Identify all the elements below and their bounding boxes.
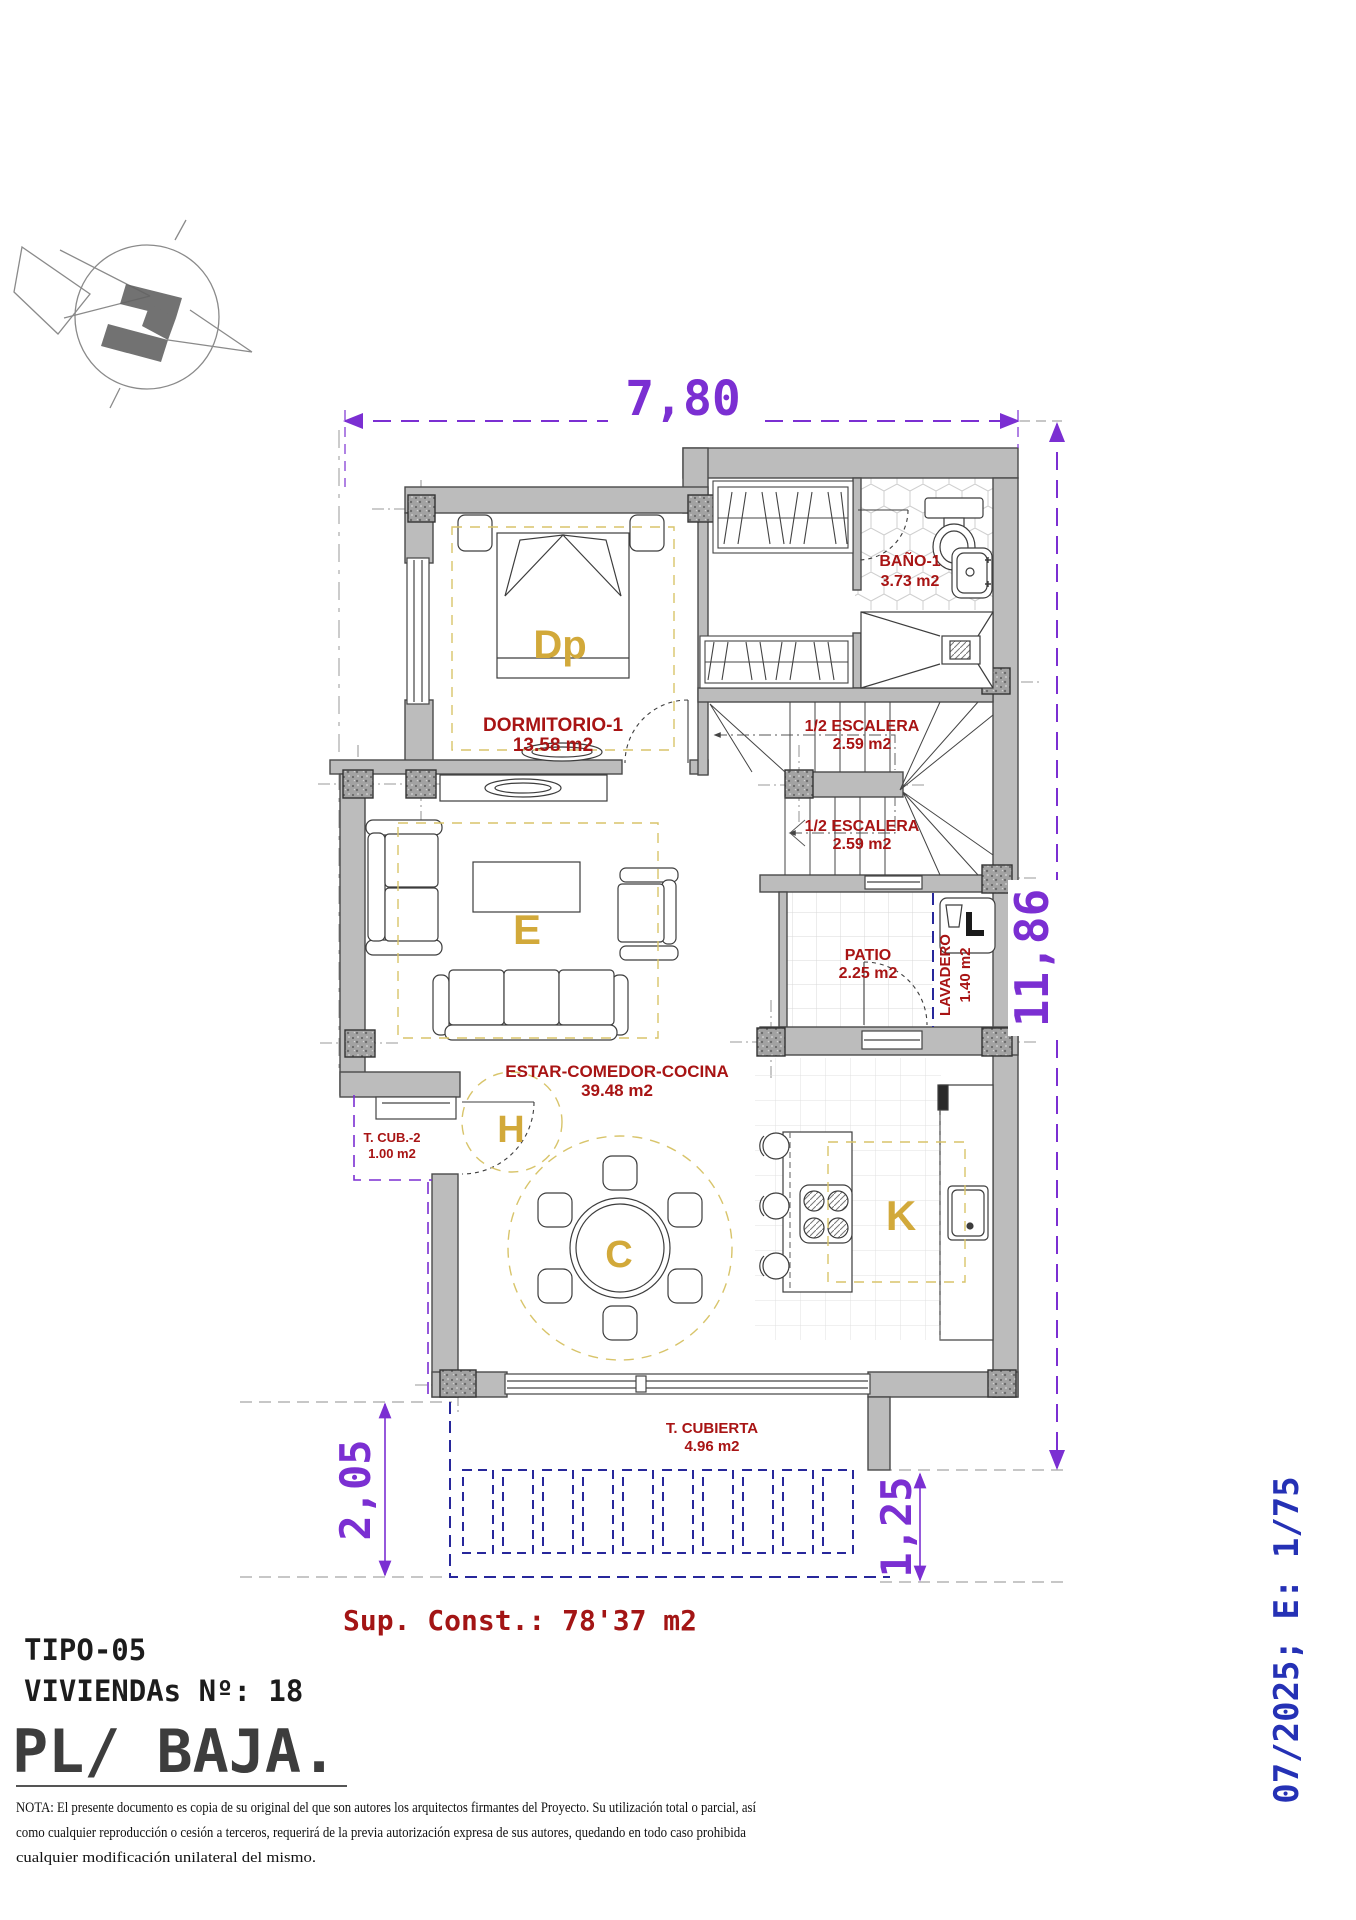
living-sliding-door bbox=[505, 1374, 870, 1394]
floor-plan-drawing: 7,80 11,86 2,05 1,25 DORMITORIO-1 13.58 … bbox=[0, 0, 1356, 1920]
terrace-side-wall bbox=[868, 1397, 890, 1470]
stair-center-wall bbox=[812, 772, 903, 797]
letter-hall: H bbox=[497, 1109, 524, 1151]
label-tcubierta-name: T. CUBIERTA bbox=[666, 1420, 758, 1437]
floor-plan-sheet: 7,80 11,86 2,05 1,25 DORMITORIO-1 13.58 … bbox=[0, 0, 1356, 1920]
shower-icon bbox=[861, 612, 993, 688]
washer-detergent-tray bbox=[946, 905, 962, 927]
closet-bath-partition-lower bbox=[853, 633, 861, 688]
letter-cocina: K bbox=[886, 1192, 916, 1239]
label-patio-name: PATIO bbox=[845, 947, 892, 964]
dining-chair bbox=[668, 1193, 702, 1227]
label-tcub2-name: T. CUB.-2 bbox=[363, 1130, 420, 1145]
label-lavadero-name: LAVADERO bbox=[937, 934, 954, 1016]
bedroom-door bbox=[625, 700, 688, 763]
west-wall-lower bbox=[432, 1174, 458, 1397]
bedroom-south-partition bbox=[330, 760, 622, 774]
nightstand-left bbox=[458, 515, 492, 551]
label-dormitorio-area: 13.58 m2 bbox=[513, 735, 593, 756]
label-escalera-sup-area: 2.59 m2 bbox=[833, 736, 892, 753]
sup-const-label: Sup. Const.: 78'37 m2 bbox=[343, 1604, 697, 1637]
washbasin-icon bbox=[952, 548, 992, 598]
label-bano-area: 3.73 m2 bbox=[881, 573, 940, 590]
nightstand-right bbox=[630, 515, 664, 551]
sofa-three-seat bbox=[433, 970, 628, 1040]
dining-chair bbox=[668, 1269, 702, 1303]
label-escalera-inf-area: 2.59 m2 bbox=[833, 836, 892, 853]
stair-north-partition bbox=[698, 688, 993, 702]
letter-estar: E bbox=[513, 906, 541, 953]
pergola-beams bbox=[463, 1470, 853, 1553]
dining-chair bbox=[603, 1156, 637, 1190]
letter-comedor: C bbox=[605, 1234, 632, 1276]
label-estar-area: 39.48 m2 bbox=[581, 1081, 653, 1100]
label-escalera-inf-name: 1/2 ESCALERA bbox=[805, 818, 920, 835]
label-lavadero-area: 1.40 m2 bbox=[957, 947, 974, 1002]
cooktop-icon bbox=[800, 1185, 852, 1243]
nota-line-2: como cualquier reproducción o cesión a t… bbox=[16, 1825, 746, 1841]
nota-line-1: NOTA: El presente documento es copia de … bbox=[16, 1800, 756, 1816]
sofa-two-seat bbox=[366, 820, 442, 955]
revision-scale-label: 07/2025; E: 1/75 bbox=[1267, 1476, 1307, 1804]
label-escalera-sup-name: 1/2 ESCALERA bbox=[805, 718, 920, 735]
label-tcub2-area: 1.00 m2 bbox=[368, 1146, 416, 1161]
bedroom-window bbox=[407, 558, 429, 704]
title-block: TIPO-05 VIVIENDAs Nº: 18 PL/ BAJA. bbox=[12, 1633, 347, 1787]
north-wall bbox=[683, 448, 1018, 478]
letter-dormitorio: Dp bbox=[533, 623, 586, 667]
nota-block: NOTA: El presente documento es copia de … bbox=[16, 1800, 756, 1866]
label-patio-area: 2.25 m2 bbox=[839, 965, 898, 982]
dining-chair bbox=[603, 1306, 637, 1340]
closets bbox=[700, 481, 853, 688]
title-tipo: TIPO-05 bbox=[24, 1633, 146, 1667]
stair-vent-window bbox=[865, 876, 922, 889]
entry-porch-step bbox=[376, 1097, 456, 1119]
label-bano-name: BAÑO-1 bbox=[879, 550, 940, 570]
title-viviendas: VIVIENDAs Nº: 18 bbox=[24, 1674, 303, 1708]
dim-right-value: 11,86 bbox=[1005, 889, 1059, 1027]
closet-bath-partition-upper bbox=[853, 478, 861, 590]
bedroom-north-wall bbox=[405, 487, 708, 513]
dim-bottom-left-value: 2,05 bbox=[331, 1439, 380, 1540]
dim-top-value: 7,80 bbox=[625, 371, 741, 427]
label-estar-name: ESTAR-COMEDOR-COCINA bbox=[505, 1062, 729, 1081]
dining-chair bbox=[538, 1193, 572, 1227]
closet-lower bbox=[700, 636, 853, 688]
patio-west-wall bbox=[779, 892, 787, 1027]
entry-wall bbox=[340, 1072, 460, 1097]
wall-end-cap bbox=[938, 1085, 948, 1110]
patio-window bbox=[862, 1031, 922, 1049]
nota-line-3: cualquier modificación unilateral del mi… bbox=[16, 1850, 316, 1866]
title-planta: PL/ BAJA. bbox=[12, 1717, 337, 1787]
dim-bottom-right-value: 1,25 bbox=[872, 1476, 921, 1577]
label-dormitorio-name: DORMITORIO-1 bbox=[483, 715, 623, 736]
coffee-table bbox=[473, 862, 580, 912]
architect-logo bbox=[14, 220, 252, 408]
closet-upper bbox=[713, 481, 853, 553]
kitchen-sink-icon bbox=[948, 1186, 988, 1240]
armchair bbox=[618, 868, 678, 960]
dining-chair bbox=[538, 1269, 572, 1303]
label-tcubierta-area: 4.96 m2 bbox=[684, 1438, 739, 1455]
bedroom-west-wall-lower bbox=[405, 700, 433, 765]
logo-z-mark-icon bbox=[101, 284, 182, 362]
